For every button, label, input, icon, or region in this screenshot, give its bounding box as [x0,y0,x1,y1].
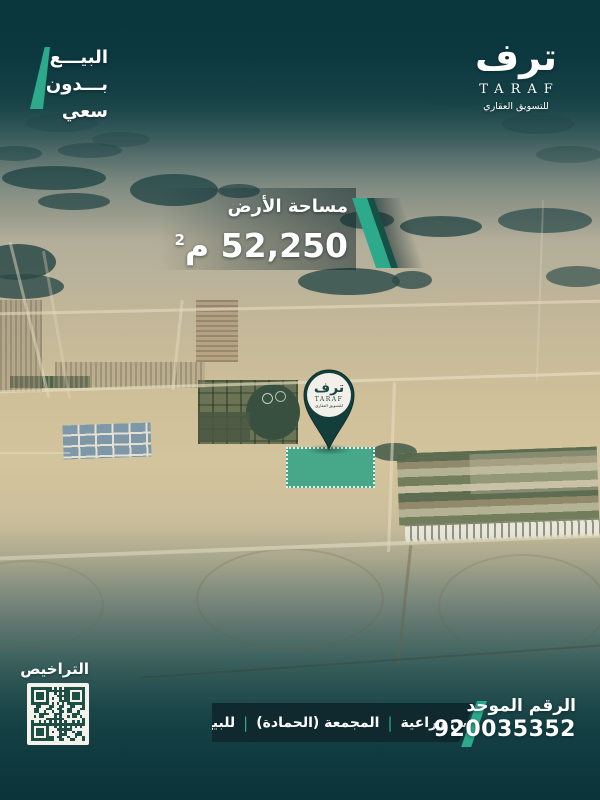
pin-logo-tagline: للتسويق العقاري [315,403,343,408]
no-commission-badge: البيـــع بـــدون سعي [36,44,108,125]
logo-calligraphy: ترف [450,34,582,80]
area-label: مساحة الأرض [118,194,348,220]
pin-logo: ترف TARAF للتسويق العقاري [307,373,351,417]
unified-number-value: 920035352 [434,717,576,743]
qr-pattern [31,687,85,741]
area-unit: م [185,226,209,265]
pin-logo-calligraphy: ترف [314,382,344,395]
pin-logo-wordmark: TARAF [315,396,344,403]
real-estate-poster: ترف TARAF للتسويق العقاري مساحة الأرض 52… [0,0,600,800]
area-unit-exponent: 2 [175,231,185,249]
tag-separator: | [243,714,248,732]
unified-number-block: الرقم الموحد 920035352 [434,695,576,743]
area-value-line: 52,250 م2 [118,220,348,266]
taraf-logo: ترف TARAF للتسويق العقاري [450,34,582,112]
badge-line-3: سعي [36,98,108,125]
tag-separator: | [387,714,392,732]
area-banner: مساحة الأرض 52,250 م2 [118,194,348,266]
licenses-label: التراخيص [27,660,89,678]
logo-tagline: للتسويق العقاري [450,101,582,112]
badge-line-1: البيـــع [36,44,108,71]
logo-wordmark: TARAF [450,82,582,97]
unified-number-label: الرقم الموحد [434,695,576,717]
qr-code [27,683,89,745]
tag-item: المجمعة (الحمادة) [256,715,379,731]
badge-line-2: بـــدون [36,71,108,98]
area-value: 52,250 [221,226,348,265]
